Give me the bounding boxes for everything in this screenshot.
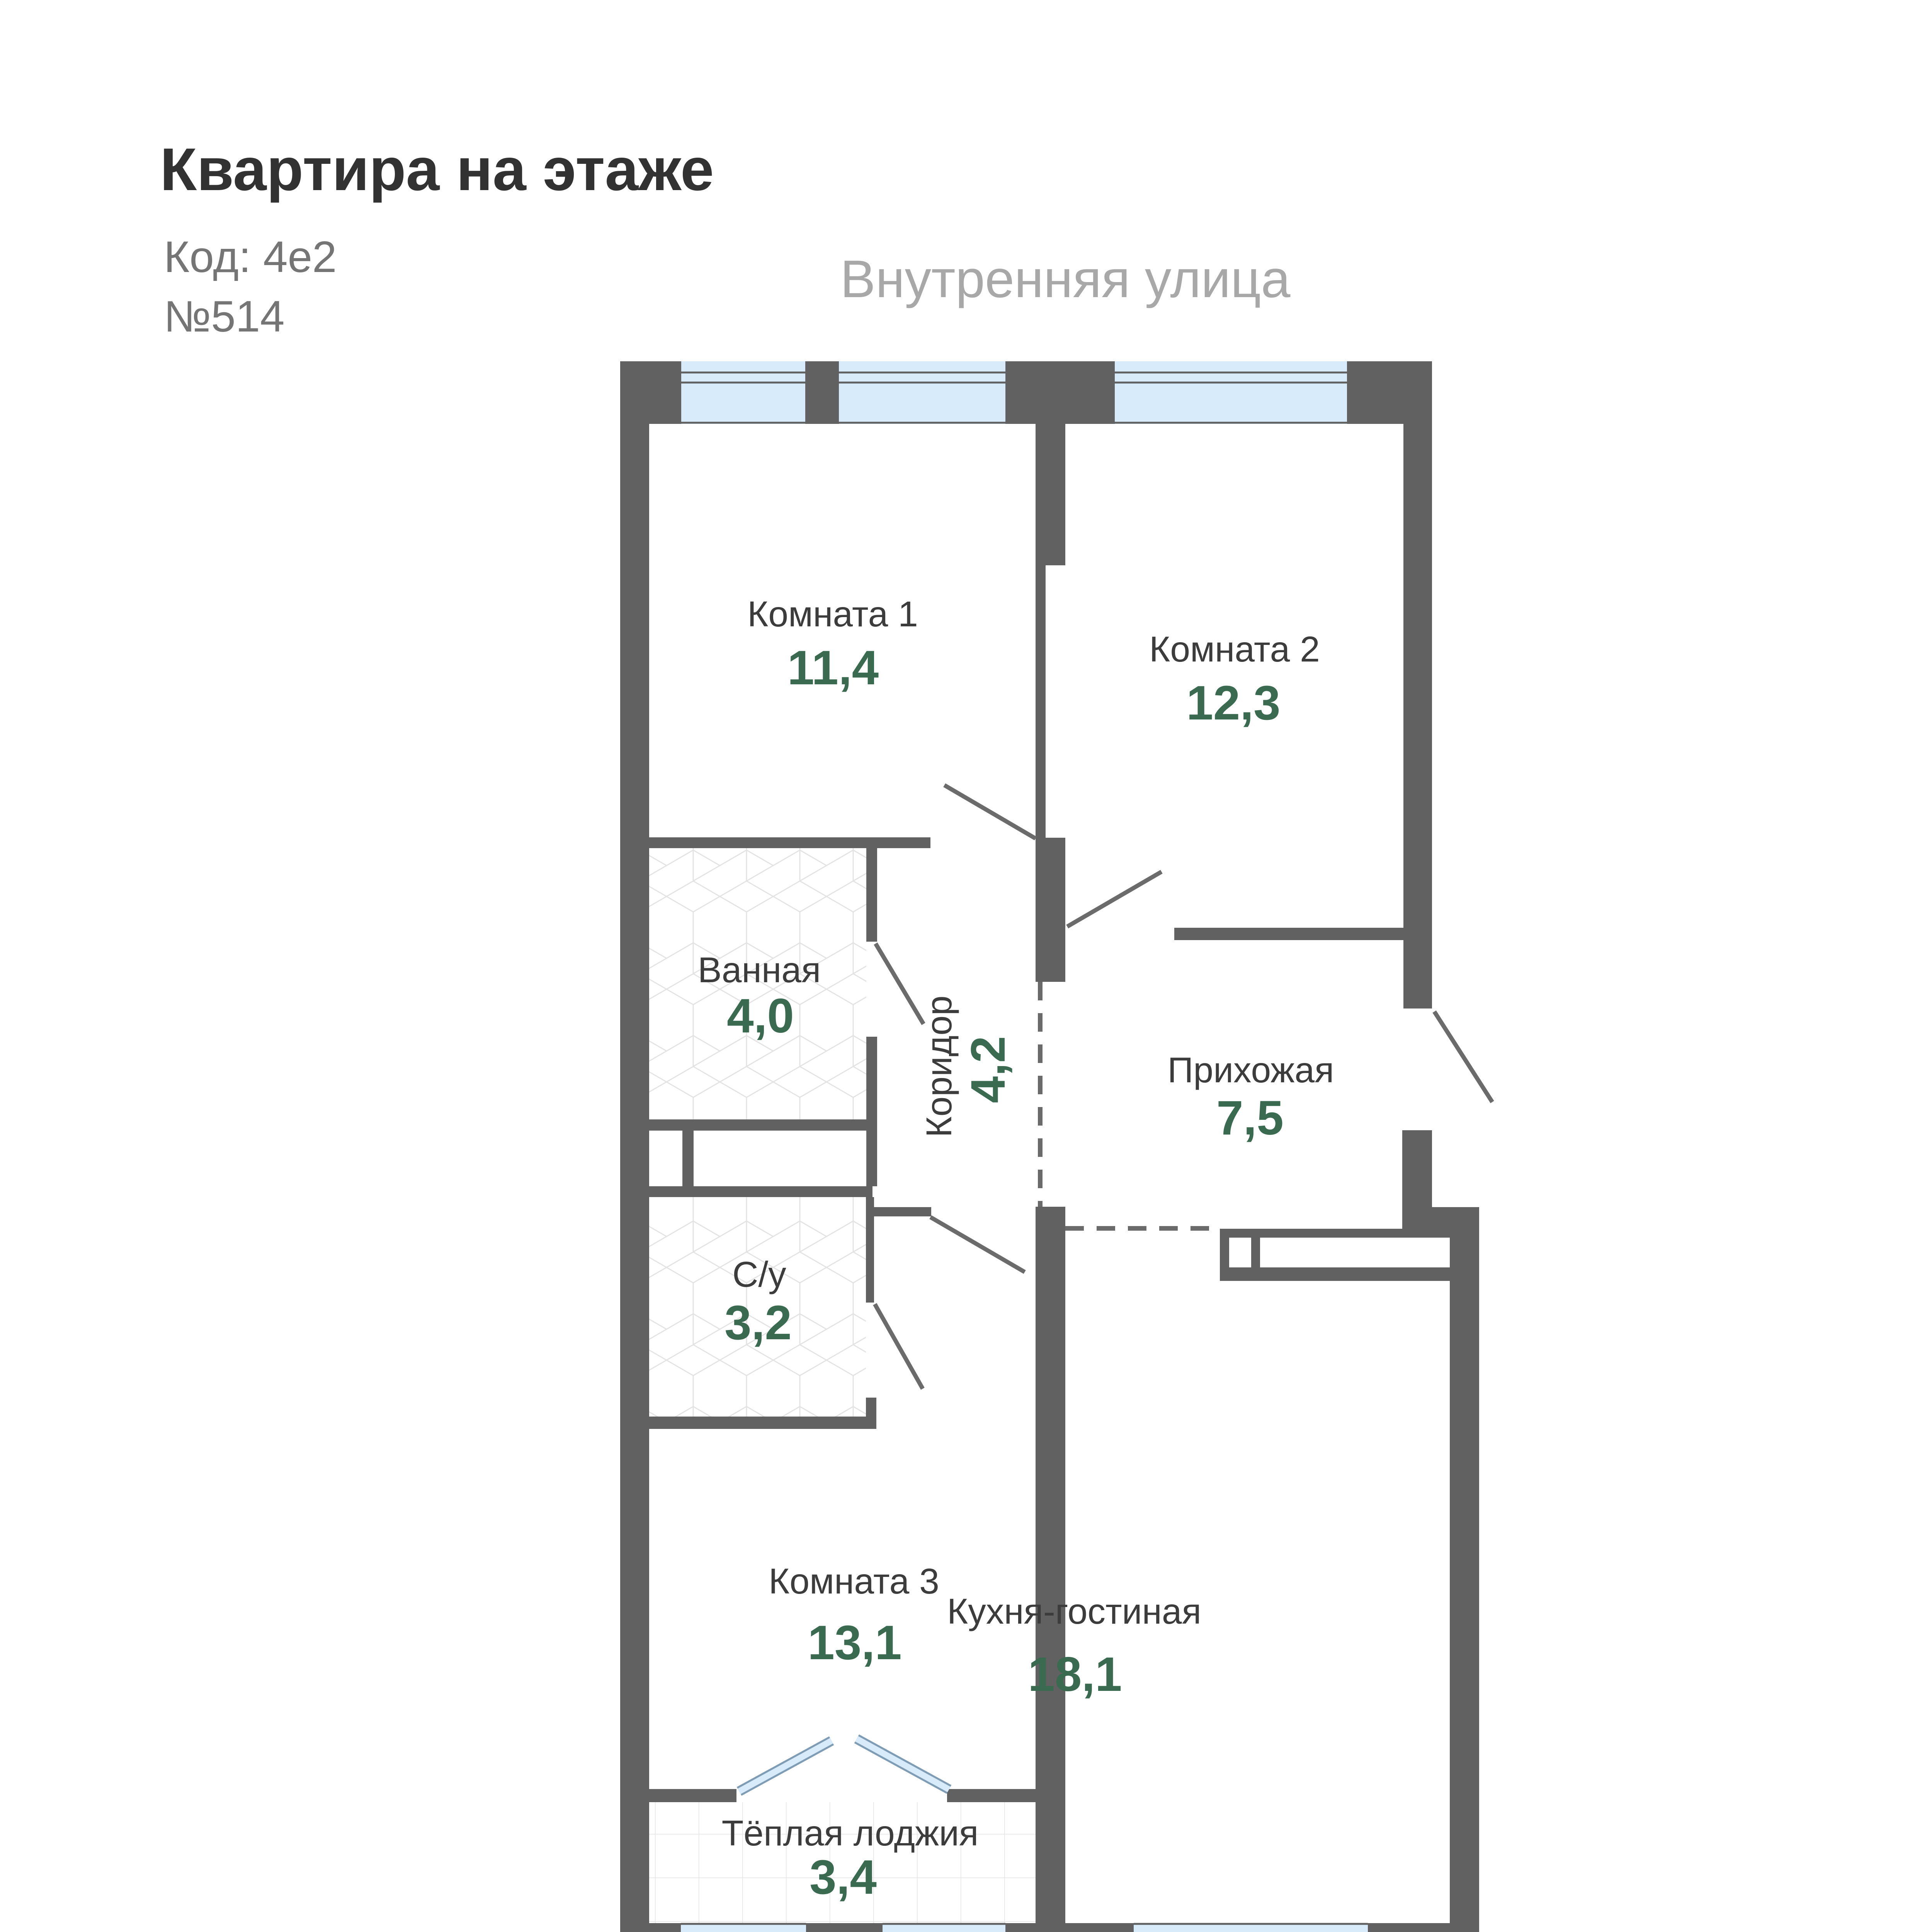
svg-text:Кухня-гостиная: Кухня-гостиная: [947, 1591, 1201, 1631]
svg-text:18,1: 18,1: [1028, 1648, 1122, 1701]
svg-text:4,2: 4,2: [961, 1036, 1015, 1103]
svg-text:Коридор: Коридор: [919, 995, 959, 1137]
svg-text:3,2: 3,2: [724, 1296, 792, 1350]
svg-text:4,0: 4,0: [727, 989, 794, 1043]
svg-text:Код: 4е2: Код: 4е2: [164, 233, 337, 282]
svg-text:Внутренняя улица: Внутренняя улица: [840, 250, 1291, 309]
svg-text:13,1: 13,1: [808, 1616, 901, 1670]
svg-text:7,5: 7,5: [1216, 1091, 1284, 1145]
svg-text:Ванная: Ванная: [698, 950, 821, 990]
svg-text:3,4: 3,4: [810, 1850, 877, 1904]
svg-text:№514: №514: [164, 292, 285, 341]
svg-text:11,4: 11,4: [787, 641, 879, 695]
svg-text:Прихожая: Прихожая: [1168, 1050, 1334, 1090]
svg-text:Квартира на этаже: Квартира на этаже: [160, 136, 714, 203]
svg-text:Комната 1: Комната 1: [747, 594, 918, 634]
svg-text:12,3: 12,3: [1186, 676, 1280, 730]
svg-text:С/у: С/у: [732, 1254, 786, 1294]
svg-text:Комната 3: Комната 3: [769, 1561, 939, 1601]
svg-text:Тёплая лоджия: Тёплая лоджия: [722, 1813, 979, 1853]
svg-text:Комната 2: Комната 2: [1149, 629, 1320, 669]
